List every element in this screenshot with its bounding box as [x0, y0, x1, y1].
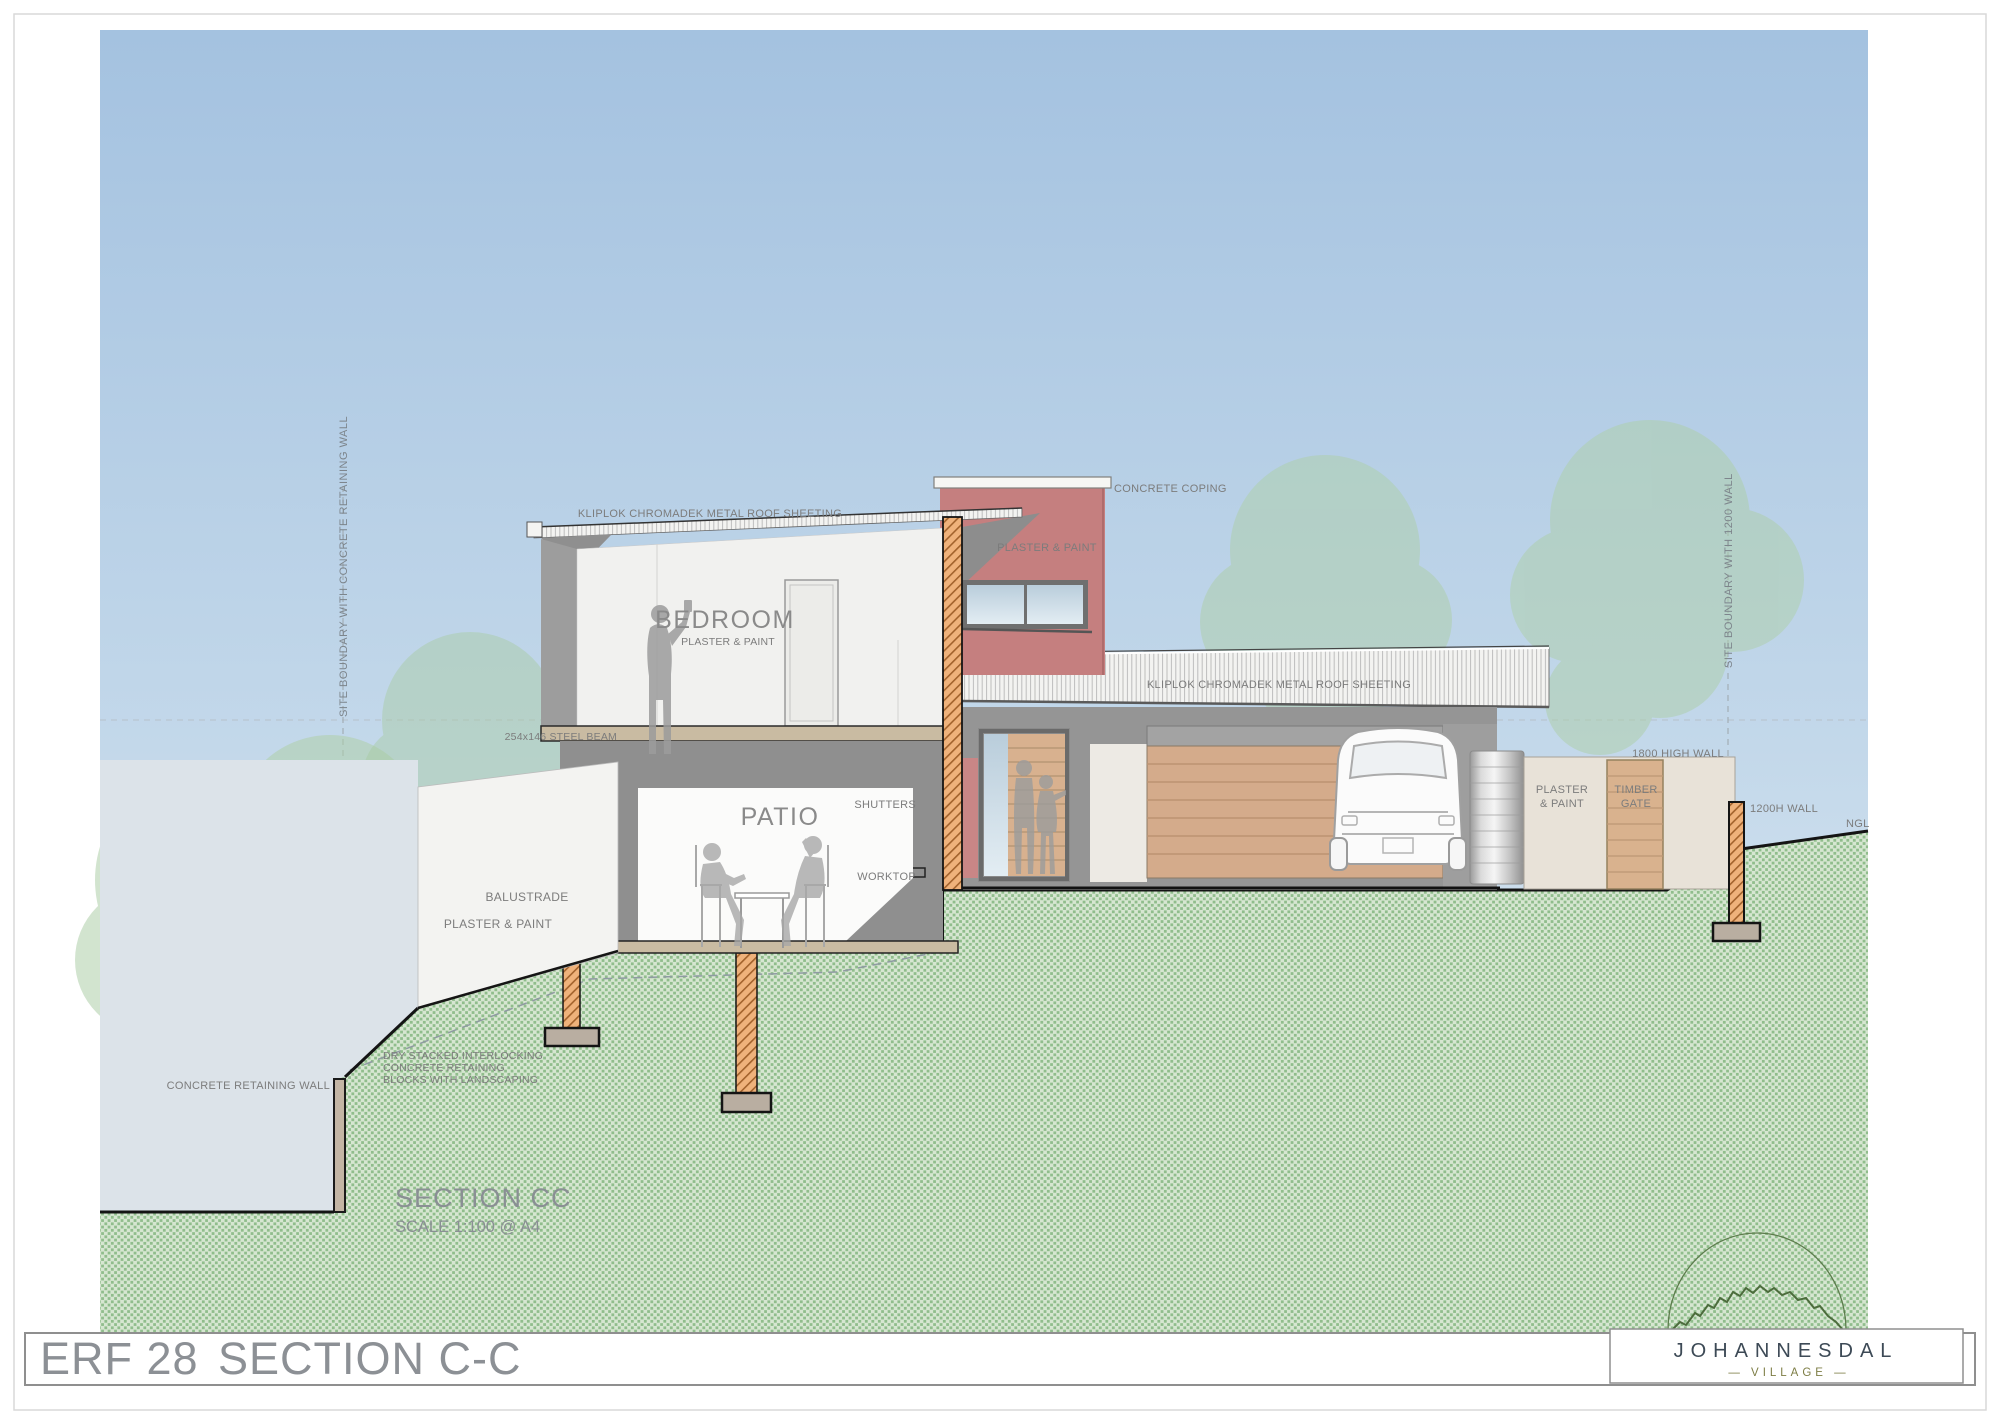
label-tower-finish: PLASTER & PAINT	[997, 542, 1097, 554]
wall-pier	[1090, 744, 1147, 882]
concrete-retaining-wall-cut	[334, 1079, 345, 1212]
label-concrete-coping: CONCRETE COPING	[1114, 483, 1227, 495]
label-boundary-right: SITE BOUNDARY WITH 1200 WALL	[1723, 473, 1735, 668]
patio-floor-slab	[560, 941, 958, 953]
entry-sidelight-glass	[984, 734, 1008, 876]
logo-box: JOHANNESDAL — VILLAGE —	[1610, 1329, 1963, 1383]
label-dry-stacked-3: BLOCKS WITH LANDSCAPING	[383, 1074, 538, 1086]
water-tank	[1470, 751, 1524, 884]
section-drawing: KLIPLOK CHROMADEK METAL ROOF SHEETING CO…	[0, 0, 2000, 1423]
drawing-sheet: KLIPLOK CHROMADEK METAL ROOF SHEETING CO…	[0, 0, 2000, 1423]
label-wall-finish-1: PLASTER	[1536, 784, 1588, 796]
label-wall-finish-2: & PAINT	[1540, 798, 1584, 810]
label-shutters: SHUTTERS	[854, 799, 916, 811]
bedroom-door	[785, 580, 838, 726]
label-roof-sheeting-upper: KLIPLOK CHROMADEK METAL ROOF SHEETING	[578, 508, 842, 520]
label-bedroom: BEDROOM	[655, 606, 795, 634]
label-low-wall: 1200H WALL	[1750, 803, 1818, 815]
label-boundary-left: SITE BOUNDARY WITH CONCRETE RETAINING WA…	[338, 416, 350, 717]
label-timber-gate-1: TIMBER	[1614, 784, 1657, 796]
drawing-title: SECTION C-C	[218, 1333, 522, 1384]
label-balustrade-finish: PLASTER & PAINT	[444, 917, 553, 931]
label-balustrade: BALUSTRADE	[485, 890, 568, 904]
label-retaining-wall: CONCRETE RETAINING WALL	[167, 1080, 330, 1092]
erf-number: ERF 28	[40, 1333, 199, 1384]
gutter	[527, 522, 542, 537]
cut-wall-hatched	[943, 517, 962, 890]
label-worktop: WORKTOP	[857, 871, 916, 883]
label-dry-stacked-1: DRY STACKED INTERLOCKING	[383, 1050, 543, 1062]
logo-name: JOHANNESDAL	[1674, 1340, 1899, 1362]
clerestory-window	[962, 580, 1092, 632]
label-ngl: NGL	[1846, 818, 1870, 830]
section-caption-scale: SCALE 1:100 @ A4	[395, 1218, 540, 1236]
concrete-coping	[934, 477, 1111, 488]
label-roof-sheeting-lower: KLIPLOK CHROMADEK METAL ROOF SHEETING	[1147, 679, 1411, 691]
label-steel-beam: 254x146 STEEL BEAM	[505, 731, 617, 743]
section-caption-title: SECTION CC	[395, 1183, 572, 1213]
boundary-wall-1800	[1524, 757, 1735, 889]
car-illustration	[1330, 728, 1466, 870]
label-high-wall: 1800 HIGH WALL	[1632, 748, 1724, 760]
label-dry-stacked-2: CONCRETE RETAINING	[383, 1062, 505, 1074]
label-timber-gate-2: GATE	[1621, 798, 1651, 810]
label-patio: PATIO	[741, 803, 820, 831]
label-bedroom-finish: PLASTER & PAINT	[681, 636, 775, 648]
logo-subtitle: — VILLAGE —	[1728, 1367, 1849, 1379]
